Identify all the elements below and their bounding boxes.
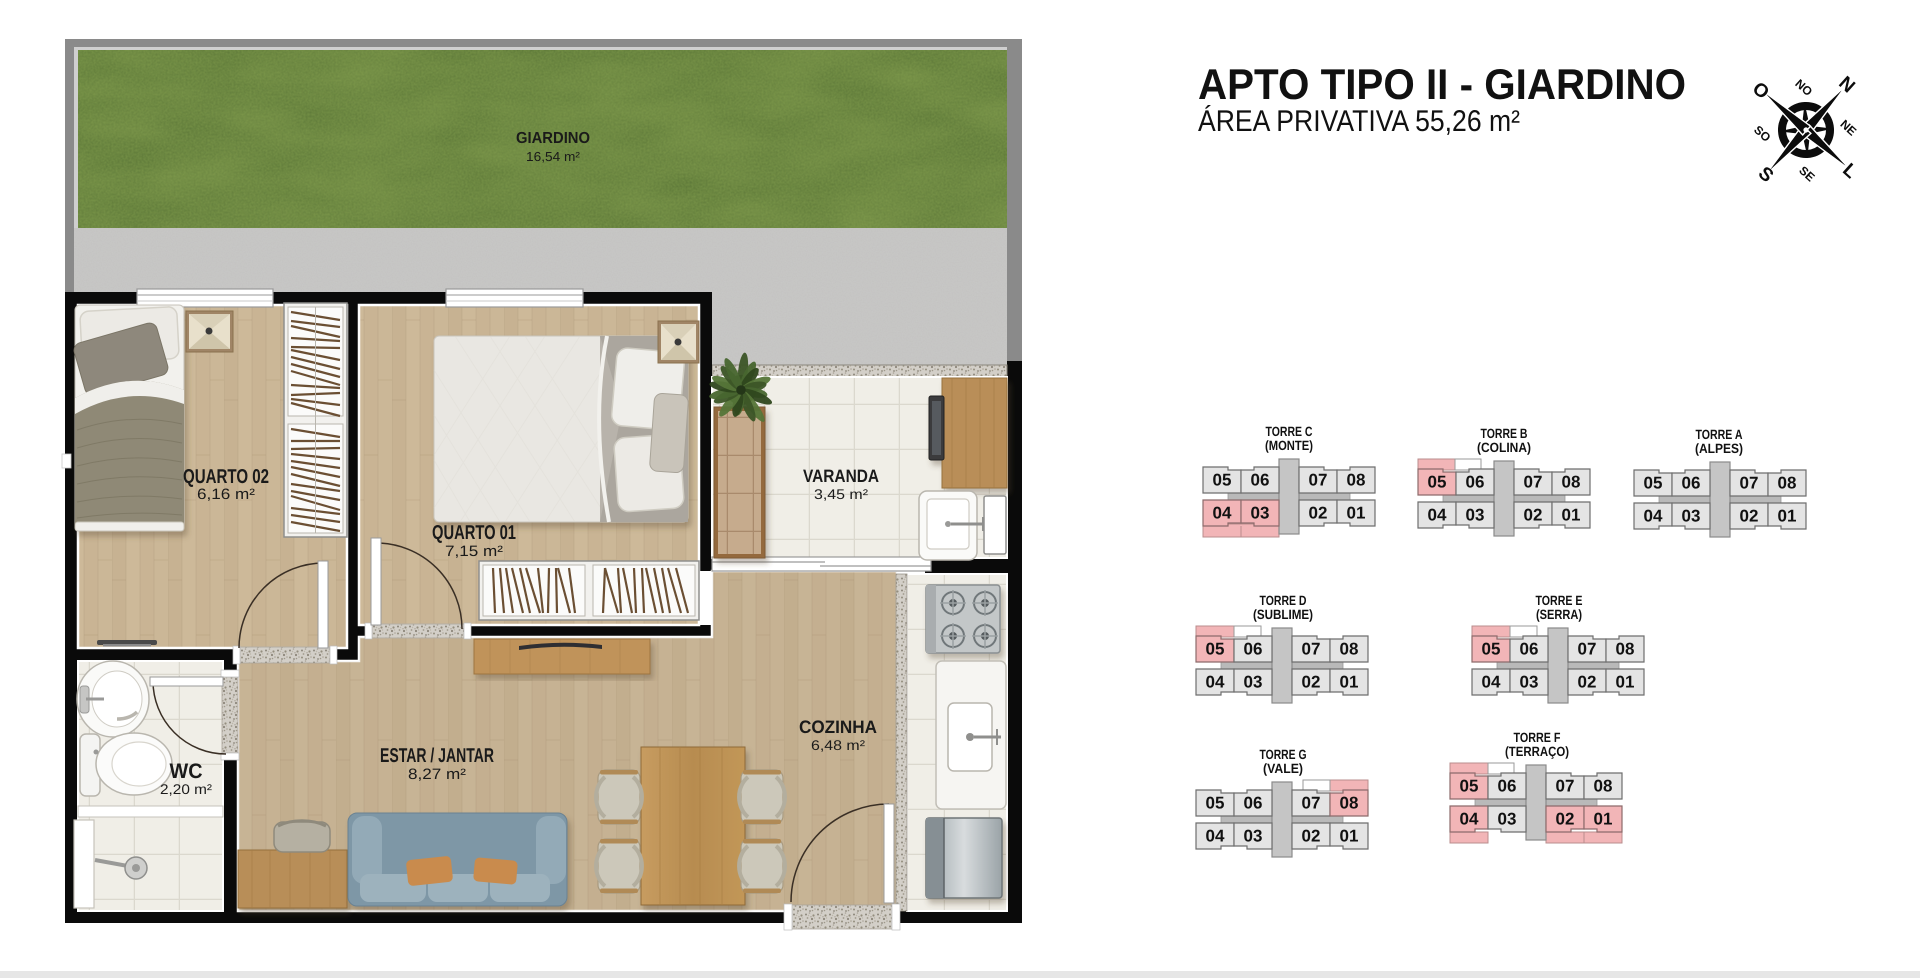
svg-text:07: 07 <box>1740 474 1759 493</box>
svg-text:VARANDA: VARANDA <box>803 466 879 486</box>
svg-text:07: 07 <box>1524 473 1543 492</box>
svg-text:07: 07 <box>1309 471 1328 490</box>
svg-text:02: 02 <box>1309 504 1328 523</box>
svg-text:(MONTE): (MONTE) <box>1265 438 1313 453</box>
svg-text:6,16 m²: 6,16 m² <box>197 486 255 503</box>
svg-text:TORRE G: TORRE G <box>1260 747 1307 762</box>
svg-text:SO: SO <box>1751 123 1773 145</box>
svg-text:04: 04 <box>1206 673 1225 692</box>
svg-text:08: 08 <box>1616 640 1635 659</box>
svg-text:ESTAR / JANTAR: ESTAR / JANTAR <box>380 745 494 767</box>
svg-text:02: 02 <box>1524 506 1543 525</box>
svg-text:05: 05 <box>1482 640 1501 659</box>
svg-text:01: 01 <box>1616 673 1635 692</box>
svg-text:01: 01 <box>1562 506 1581 525</box>
svg-text:TORRE D: TORRE D <box>1260 593 1307 608</box>
svg-text:O: O <box>1748 78 1773 103</box>
svg-text:05: 05 <box>1644 474 1663 493</box>
svg-text:(SUBLIME): (SUBLIME) <box>1253 607 1313 622</box>
svg-text:(VALE): (VALE) <box>1263 761 1303 776</box>
svg-text:02: 02 <box>1556 810 1575 829</box>
svg-text:03: 03 <box>1498 810 1517 829</box>
svg-text:NO: NO <box>1792 76 1815 98</box>
svg-text:07: 07 <box>1302 794 1321 813</box>
svg-text:07: 07 <box>1556 777 1575 796</box>
svg-text:03: 03 <box>1466 506 1485 525</box>
svg-text:04: 04 <box>1206 827 1225 846</box>
svg-text:8,27 m²: 8,27 m² <box>408 766 466 783</box>
svg-text:02: 02 <box>1302 827 1321 846</box>
svg-text:05: 05 <box>1206 794 1225 813</box>
svg-text:05: 05 <box>1428 473 1447 492</box>
svg-text:TORRE E: TORRE E <box>1536 593 1583 608</box>
svg-text:TORRE F: TORRE F <box>1514 730 1561 745</box>
svg-text:SE: SE <box>1796 163 1817 184</box>
svg-text:(COLINA): (COLINA) <box>1477 440 1531 455</box>
svg-text:08: 08 <box>1340 794 1359 813</box>
svg-text:(ALPES): (ALPES) <box>1695 441 1743 456</box>
svg-text:06: 06 <box>1520 640 1539 659</box>
svg-text:QUARTO 02: QUARTO 02 <box>183 466 269 488</box>
svg-text:07: 07 <box>1302 640 1321 659</box>
svg-text:02: 02 <box>1302 673 1321 692</box>
svg-text:04: 04 <box>1644 507 1663 526</box>
svg-text:06: 06 <box>1466 473 1485 492</box>
svg-text:TORRE A: TORRE A <box>1696 427 1743 442</box>
svg-text:03: 03 <box>1520 673 1539 692</box>
svg-text:(SERRA): (SERRA) <box>1536 607 1582 622</box>
svg-text:05: 05 <box>1206 640 1225 659</box>
svg-text:06: 06 <box>1251 471 1270 490</box>
svg-text:04: 04 <box>1482 673 1501 692</box>
svg-text:(TERRAÇO): (TERRAÇO) <box>1505 744 1569 759</box>
svg-text:06: 06 <box>1244 794 1263 813</box>
svg-text:01: 01 <box>1778 507 1797 526</box>
svg-text:WC: WC <box>170 760 203 783</box>
svg-text:08: 08 <box>1347 471 1366 490</box>
svg-text:QUARTO 01: QUARTO 01 <box>432 522 516 544</box>
svg-text:APTO TIPO II - GIARDINO: APTO TIPO II - GIARDINO <box>1198 61 1686 109</box>
svg-text:04: 04 <box>1460 810 1479 829</box>
svg-text:01: 01 <box>1594 810 1613 829</box>
svg-text:08: 08 <box>1594 777 1613 796</box>
svg-text:NE: NE <box>1837 117 1859 139</box>
svg-text:01: 01 <box>1347 504 1366 523</box>
svg-text:01: 01 <box>1340 827 1359 846</box>
svg-text:6,48 m²: 6,48 m² <box>811 737 865 753</box>
svg-text:06: 06 <box>1498 777 1517 796</box>
svg-text:7,15 m²: 7,15 m² <box>445 543 503 560</box>
svg-text:01: 01 <box>1340 673 1359 692</box>
svg-text:08: 08 <box>1340 640 1359 659</box>
svg-text:GIARDINO: GIARDINO <box>516 130 590 147</box>
svg-text:3,45 m²: 3,45 m² <box>814 486 868 502</box>
svg-text:04: 04 <box>1213 504 1232 523</box>
svg-text:COZINHA: COZINHA <box>799 717 877 737</box>
svg-text:06: 06 <box>1682 474 1701 493</box>
svg-text:02: 02 <box>1578 673 1597 692</box>
svg-text:08: 08 <box>1562 473 1581 492</box>
svg-text:16,54 m²: 16,54 m² <box>526 149 581 164</box>
svg-text:03: 03 <box>1244 673 1263 692</box>
svg-text:08: 08 <box>1778 474 1797 493</box>
svg-text:TORRE B: TORRE B <box>1481 426 1528 441</box>
svg-text:2,20 m²: 2,20 m² <box>160 781 212 797</box>
svg-text:05: 05 <box>1460 777 1479 796</box>
svg-text:06: 06 <box>1244 640 1263 659</box>
svg-text:ÁREA PRIVATIVA 55,26 m²: ÁREA PRIVATIVA 55,26 m² <box>1198 104 1520 138</box>
svg-text:03: 03 <box>1251 504 1270 523</box>
svg-text:04: 04 <box>1428 506 1447 525</box>
svg-text:05: 05 <box>1213 471 1232 490</box>
svg-text:03: 03 <box>1682 507 1701 526</box>
svg-text:TORRE C: TORRE C <box>1266 424 1313 439</box>
svg-text:02: 02 <box>1740 507 1759 526</box>
svg-text:03: 03 <box>1244 827 1263 846</box>
svg-text:07: 07 <box>1578 640 1597 659</box>
